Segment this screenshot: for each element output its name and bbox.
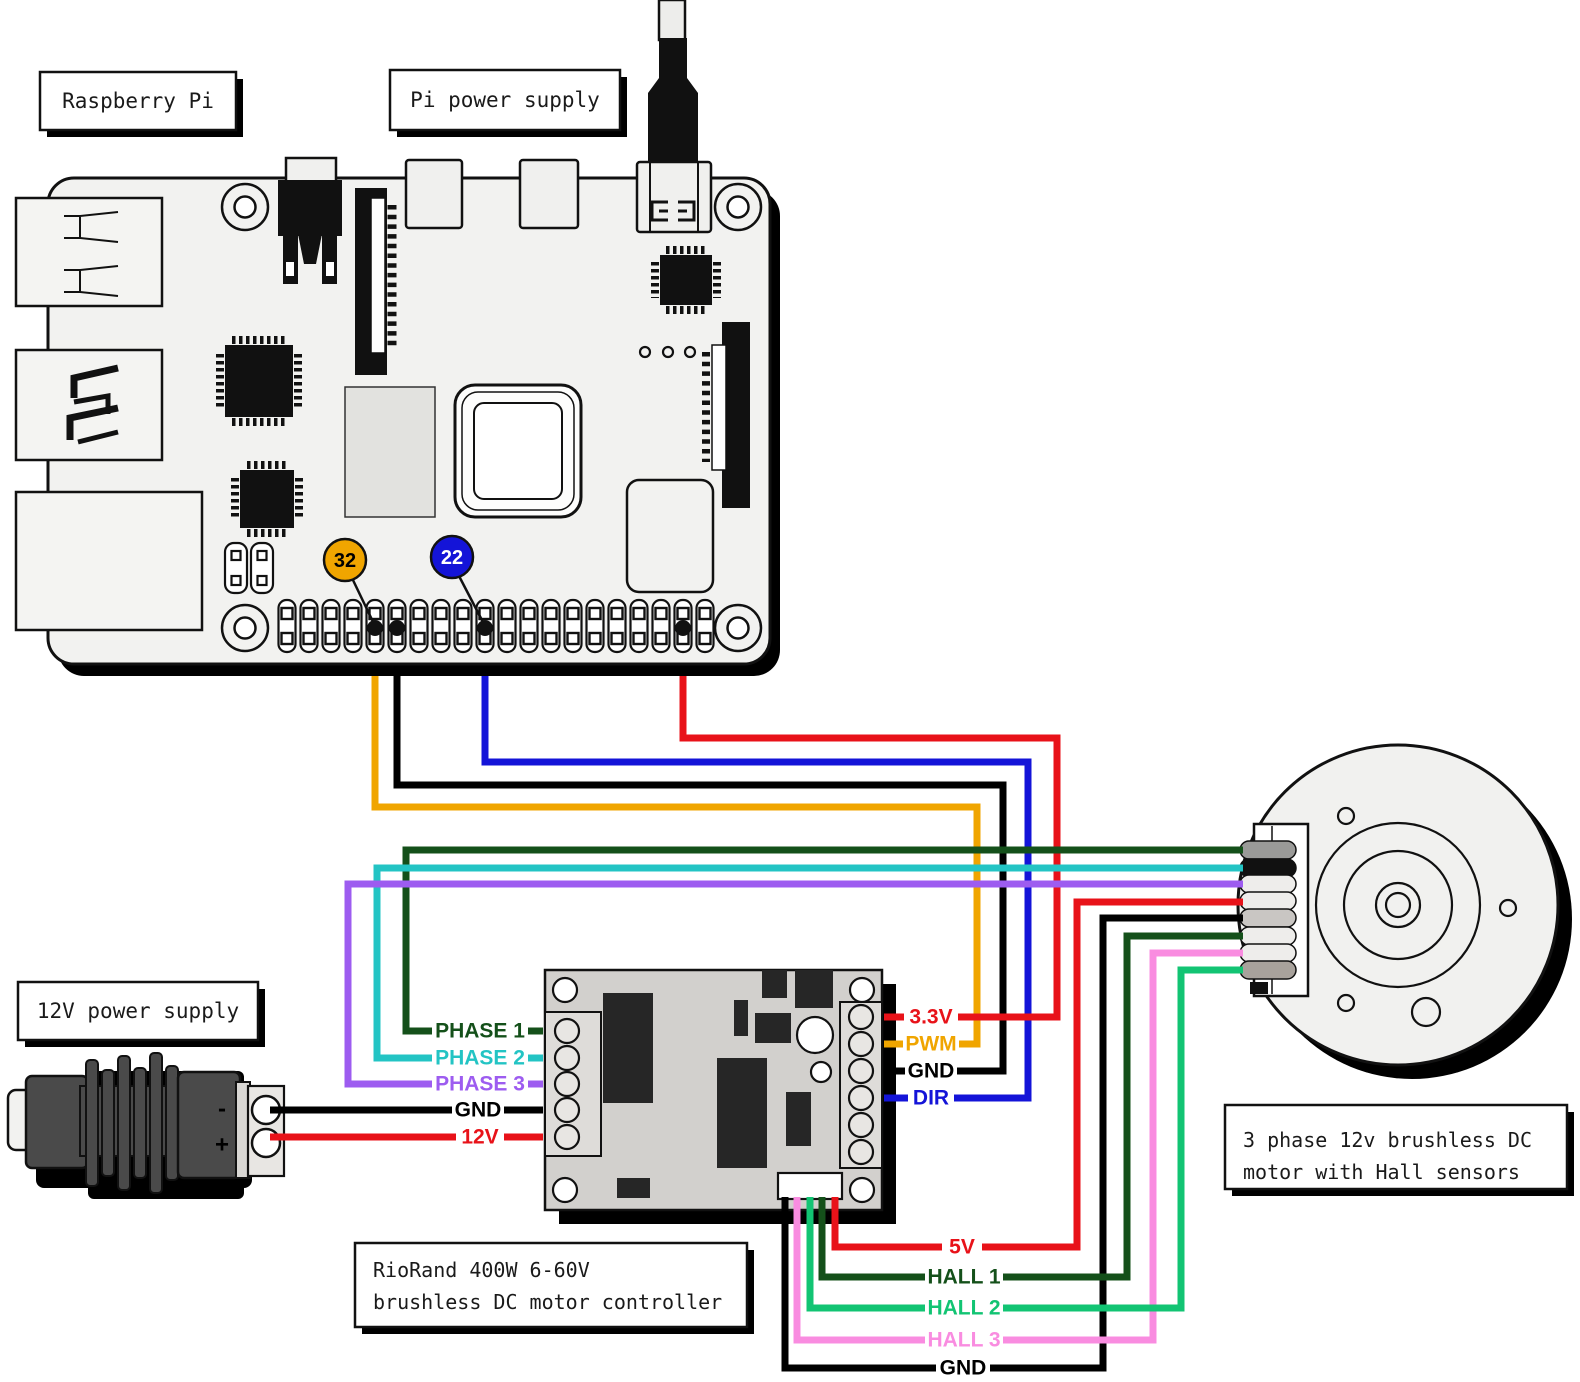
dir-label: DIR (913, 1087, 949, 1110)
jack-barrel (26, 1076, 88, 1168)
gnd-right-label: GND (908, 1060, 955, 1083)
terminal-positive (252, 1129, 280, 1157)
motor-text-line2: motor with Hall sensors (1243, 1160, 1520, 1184)
wifi-chip (655, 250, 717, 310)
pin-dot-gnd (389, 620, 405, 636)
power-cable-plug (648, 38, 698, 164)
label-controller: RioRand 400W 6-60V brushless DC motor co… (355, 1243, 754, 1334)
bldc-motor (1238, 745, 1572, 1079)
phase-1-label: PHASE 1 (435, 1020, 525, 1043)
display-connector (355, 188, 392, 375)
5v-label: 5V (949, 1236, 975, 1259)
hall-wire-labels: 5V HALL 1 HALL 2 HALL 3 GND (925, 1236, 1003, 1380)
capacitor-small (811, 1062, 831, 1082)
controller-text-line2: brushless DC motor controller (373, 1290, 722, 1314)
label-12v-power-supply: 12V power supply (18, 982, 265, 1047)
pin-dot-dir (477, 620, 493, 636)
usbc-power-port (637, 0, 711, 232)
soc-shield (455, 385, 581, 517)
hall-1-label: HALL 1 (927, 1266, 1000, 1289)
power-cable-top (659, 0, 685, 40)
right-terminal-labels: 3.3V PWM GND DIR (903, 1006, 959, 1110)
phase-2-label: PHASE 2 (435, 1047, 525, 1070)
motor-wire-connector (1240, 824, 1308, 996)
negative-label: - (218, 1096, 226, 1123)
phase-3-label: PHASE 3 (435, 1073, 525, 1096)
label-pi-power-supply: Pi power supply (390, 70, 627, 137)
motor-text-line1: 3 phase 12v brushless DC (1243, 1128, 1532, 1152)
hall-connector (778, 1173, 842, 1199)
hdmi-port-1 (406, 160, 462, 228)
pin-badge-32-text: 32 (334, 550, 356, 572)
ic-chip-small (235, 465, 299, 533)
diagram-canvas: - + (0, 0, 1580, 1382)
motor-controller-board (545, 970, 896, 1224)
capacitor-large (797, 1017, 833, 1053)
usb-port-2 (16, 350, 162, 460)
left-terminal-labels: PHASE 1 PHASE 2 PHASE 3 GND 12V (432, 1020, 528, 1149)
hall-2-label: HALL 2 (927, 1297, 1000, 1320)
12v-label: 12V (461, 1126, 498, 1149)
jack-head (178, 1072, 240, 1178)
ic-chip-large (220, 340, 298, 422)
ram-chip (345, 387, 435, 517)
hall-3-label: HALL 3 (927, 1329, 1000, 1352)
33v-label: 3.3V (909, 1006, 952, 1029)
12v-power-supply-text: 12V power supply (37, 999, 239, 1023)
gnd-bottom-label: GND (940, 1357, 987, 1380)
hdmi-port-2 (520, 160, 578, 228)
raspberry-pi-text: Raspberry Pi (62, 89, 214, 113)
positive-label: + (215, 1132, 229, 1159)
connector-tab (1250, 982, 1268, 994)
label-raspberry-pi: Raspberry Pi (40, 72, 243, 137)
pin-dot-pwm (367, 620, 383, 636)
left-terminal-screws (555, 1019, 579, 1149)
controller-text-line1: RioRand 400W 6-60V (373, 1258, 590, 1282)
pwm-label: PWM (905, 1033, 956, 1056)
pin-dot-33v (675, 620, 691, 636)
label-motor: 3 phase 12v brushless DC motor with Hall… (1225, 1105, 1574, 1196)
ethernet-port (16, 492, 202, 630)
dc-power-jack: - + (8, 1053, 284, 1199)
wiring-diagram: - + (0, 0, 1580, 1382)
pi-power-supply-text: Pi power supply (410, 88, 600, 112)
gnd-left-label: GND (455, 1099, 502, 1122)
pin-badge-22-text: 22 (441, 547, 463, 569)
test-pads (640, 347, 695, 357)
